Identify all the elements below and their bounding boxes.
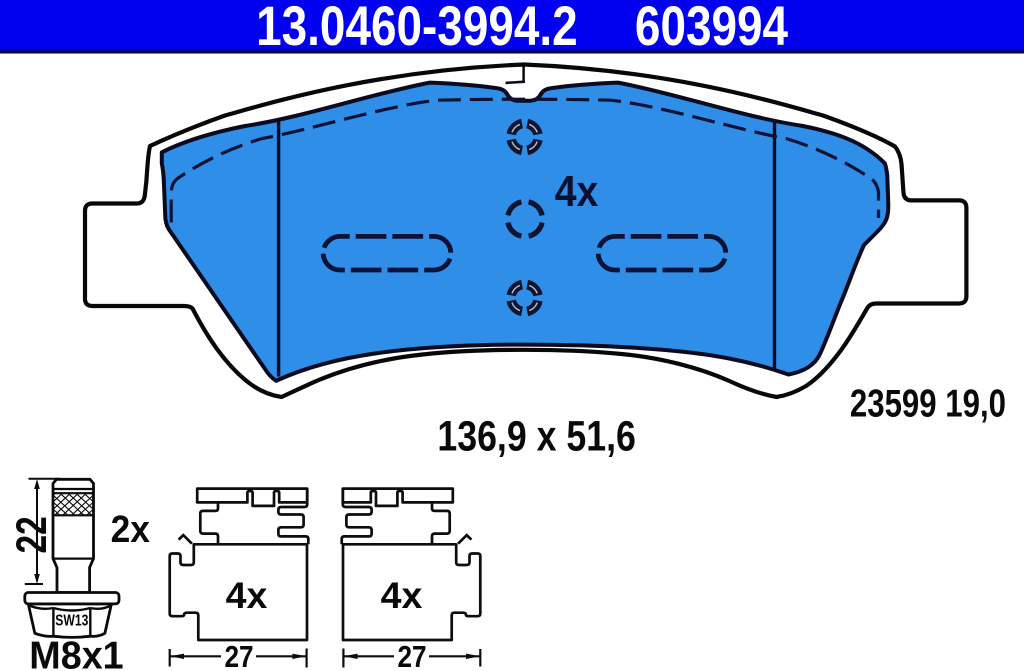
svg-text:23599 19,0: 23599 19,0 [850, 382, 1006, 425]
svg-text:13.0460-3994.2: 13.0460-3994.2 [256, 0, 578, 57]
svg-text:4x: 4x [381, 574, 423, 616]
svg-text:4x: 4x [226, 574, 268, 616]
svg-text:136,9 x 51,6: 136,9 x 51,6 [437, 413, 635, 461]
svg-text:27: 27 [224, 640, 253, 671]
svg-text:M8x1: M8x1 [29, 635, 123, 671]
svg-text:27: 27 [397, 640, 426, 671]
svg-text:2x: 2x [111, 508, 151, 550]
svg-text:603994: 603994 [635, 0, 789, 57]
svg-text:22: 22 [8, 516, 56, 553]
svg-text:SW13: SW13 [55, 612, 88, 630]
svg-text:4x: 4x [555, 166, 599, 216]
